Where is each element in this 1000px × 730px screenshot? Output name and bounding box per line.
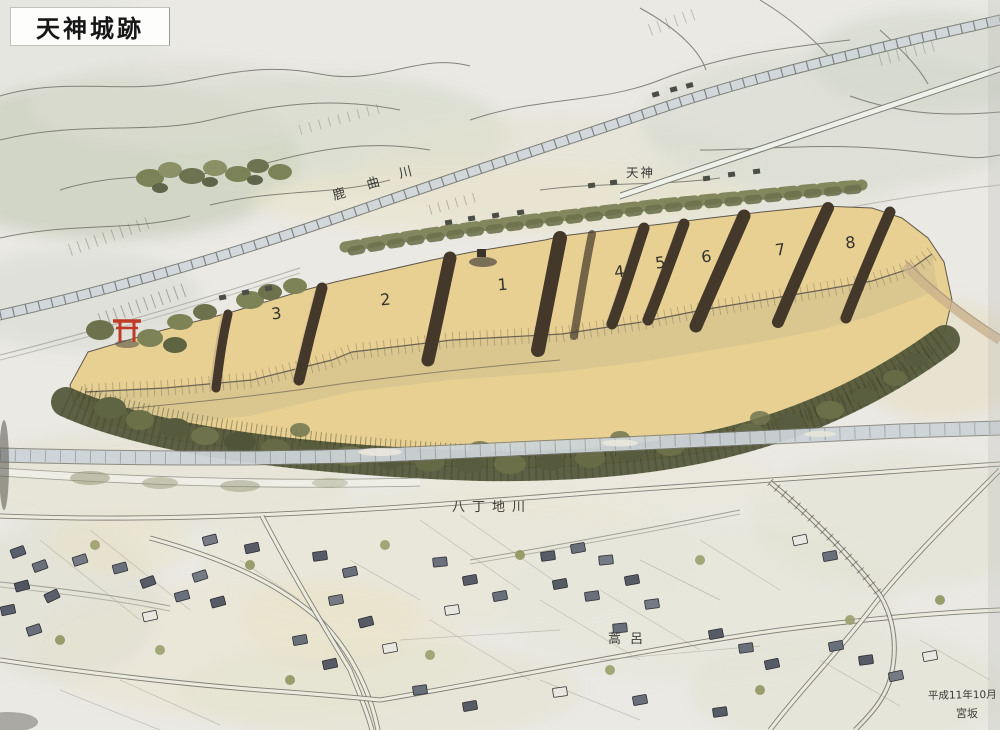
map-title-box: 天神城跡 bbox=[10, 7, 170, 46]
signature-label: 宮坂 bbox=[956, 706, 978, 720]
map-canvas: 鹿 曲 川 天神 八丁地川 蒿呂 平成11年10月 宮坂 1 2 3 4 5 6… bbox=[0, 0, 1000, 730]
plateau-number-8: 8 bbox=[844, 233, 856, 253]
plateau-number-1: 1 bbox=[497, 275, 508, 295]
village-label: 蒿呂 bbox=[608, 632, 652, 647]
date-label: 平成11年10月 bbox=[928, 688, 997, 702]
map-title: 天神城跡 bbox=[36, 9, 144, 44]
plateau-number-3: 3 bbox=[270, 304, 282, 324]
tenjin-castle-illustrated-map: 鹿 曲 川 天神 八丁地川 蒿呂 平成11年10月 宮坂 1 2 3 4 5 6… bbox=[0, 0, 1000, 730]
monument-shadow bbox=[469, 257, 497, 267]
tenjin-label: 天神 bbox=[626, 165, 655, 180]
hatchoji-river-label: 八丁地川 bbox=[452, 500, 532, 515]
monument-marker bbox=[477, 249, 486, 257]
plateau-number-6: 6 bbox=[700, 247, 712, 267]
plateau-number-2: 2 bbox=[379, 290, 391, 310]
